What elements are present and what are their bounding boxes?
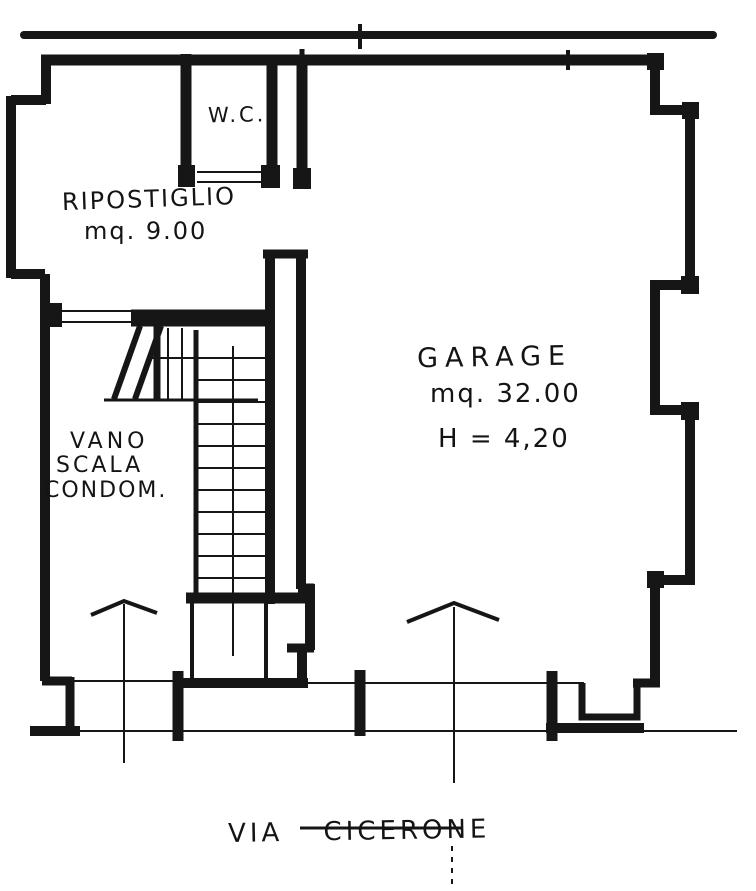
garage-height: H = 4,20 bbox=[438, 424, 570, 454]
garage-label: GARAGE bbox=[417, 341, 573, 375]
wall-end-blob bbox=[293, 168, 311, 189]
pilaster-dot bbox=[681, 276, 699, 294]
floor-plan-page: W.C. RIPOSTIGLIO mq. 9.00 GARAGE mq. 32.… bbox=[0, 0, 756, 891]
bottom-left-step bbox=[42, 677, 72, 732]
wall-end-blob bbox=[47, 303, 62, 327]
garage-area: mq. 32.00 bbox=[430, 379, 581, 409]
wall-end-blob bbox=[261, 165, 280, 188]
outer-wall-left bbox=[11, 60, 46, 681]
step-recess bbox=[582, 683, 637, 717]
pilaster-dot bbox=[647, 53, 664, 70]
floor-plan-drawing: W.C. RIPOSTIGLIO mq. 9.00 GARAGE mq. 32.… bbox=[0, 0, 756, 891]
ripostiglio-label: RIPOSTIGLIO bbox=[62, 182, 237, 216]
vano-scala-label-line2: SCALA bbox=[56, 453, 143, 478]
street-name-label: VIA CICERONE bbox=[228, 814, 491, 849]
vano-scala-label-line1: VANO bbox=[70, 429, 148, 454]
wc-label: W.C. bbox=[208, 102, 267, 127]
vano-scala-label-line3: CONDOM. bbox=[44, 478, 167, 503]
pilaster-dot bbox=[682, 102, 699, 119]
ripostiglio-area: mq. 9.00 bbox=[84, 217, 207, 245]
outer-wall-right bbox=[655, 55, 690, 684]
pilaster-dot bbox=[647, 571, 664, 588]
pilaster-dot bbox=[681, 402, 699, 420]
